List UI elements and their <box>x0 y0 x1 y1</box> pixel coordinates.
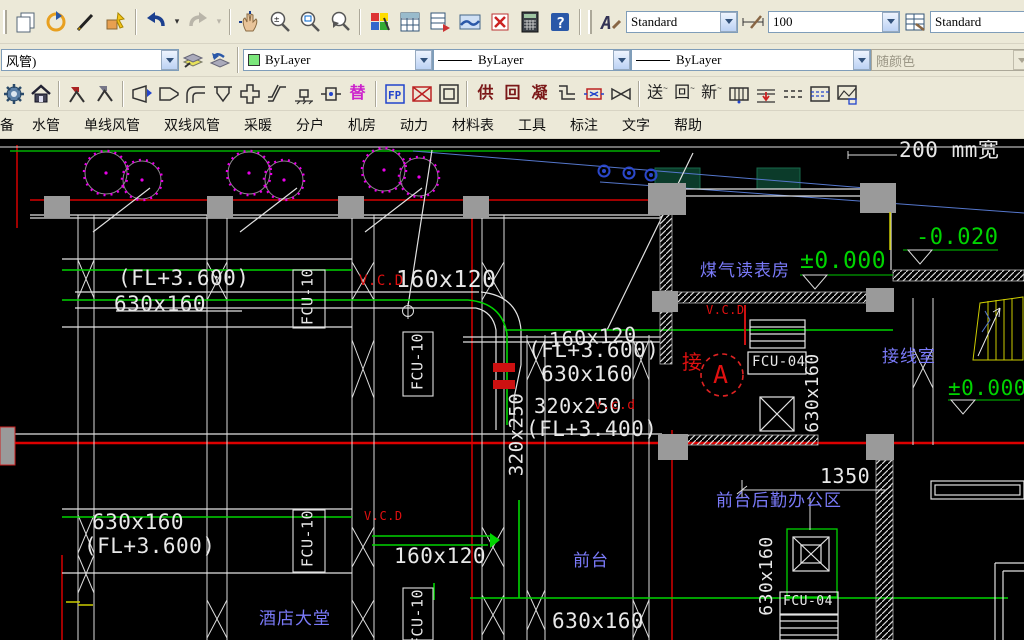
duct-tee-icon <box>211 82 235 106</box>
separator <box>375 81 377 107</box>
separator <box>122 81 124 107</box>
menu-item-heating[interactable]: 采暖 <box>244 115 272 135</box>
air-outlet-button[interactable] <box>725 81 752 107</box>
menu-bar: 备 水管 单线风管 双线风管 采暖 分户 机房 动力 材料表 工具 标注 文字 … <box>0 111 1024 139</box>
pan-button[interactable] <box>235 7 265 37</box>
text-style-value: Standard <box>631 14 720 30</box>
dropdown-arrow-icon[interactable] <box>882 12 899 32</box>
open-button[interactable] <box>41 7 71 37</box>
damper-button[interactable] <box>408 81 435 107</box>
label-room-lobby[interactable]: 酒店大堂 <box>259 610 331 627</box>
label-fcu10-d[interactable]: FCU-10 <box>411 573 426 640</box>
linetype-value: ByLayer <box>478 52 613 68</box>
supply-pipe-char-icon: 供 <box>477 86 493 102</box>
label-room-junction[interactable]: 接线室 <box>882 348 936 365</box>
gear-icon <box>3 83 25 105</box>
drawing-canvas[interactable]: 200 mm宽 -0.020 ±0.000 ±0.000 煤气读表房 接线室 前… <box>0 140 1024 640</box>
build-tool-button-2[interactable] <box>91 81 118 107</box>
layers-palette-icon <box>398 10 422 34</box>
label-level-neg-020[interactable]: -0.020 <box>916 227 998 249</box>
dropdown-arrow-icon[interactable] <box>853 50 870 70</box>
damper-icon <box>410 82 434 106</box>
label-vcd-c[interactable]: V.C.D <box>364 510 403 522</box>
table-style-icon <box>903 10 927 34</box>
fresh-air-button[interactable]: 新~ <box>698 81 725 107</box>
valve-icon <box>609 82 633 106</box>
color-select[interactable]: ByLayer <box>243 49 433 71</box>
separator <box>135 9 137 35</box>
duct-cross-icon <box>238 82 262 106</box>
label-duct-630x160-c[interactable]: 630x160 <box>92 512 184 533</box>
layer-stack-icon <box>181 49 205 71</box>
dim-scale-value: 100 <box>773 14 882 30</box>
valve-button[interactable] <box>607 81 634 107</box>
label-duct-630x160-b[interactable]: 630x160 <box>541 364 633 385</box>
structural-columns <box>44 183 896 460</box>
layer-value: 风管) <box>6 51 161 70</box>
return-pipe-button[interactable]: 回 <box>499 81 526 107</box>
menu-item-household[interactable]: 分户 <box>296 115 324 135</box>
svg-text:A: A <box>600 13 612 34</box>
duct-transition-button[interactable] <box>155 81 182 107</box>
duct-offset-icon <box>265 82 289 106</box>
zoom-realtime-button[interactable]: ± <box>265 7 295 37</box>
diffuser-arrow-icon <box>754 82 778 106</box>
markup-icon <box>488 10 512 34</box>
label-fcu10-c[interactable]: FCU-10 <box>301 494 316 584</box>
layer-translate-icon <box>428 10 452 34</box>
dropdown-arrow-icon[interactable] <box>161 50 178 70</box>
pump-button[interactable] <box>580 81 607 107</box>
text-style-icon: A <box>599 10 623 34</box>
label-fcu10-b[interactable]: FCU-10 <box>411 317 426 407</box>
layer-translate-button[interactable] <box>425 7 455 37</box>
return-air-char-icon: 回~ <box>674 85 695 101</box>
separator <box>359 9 361 35</box>
fcu-unit-top <box>748 320 806 431</box>
label-duct-320x250-vertical[interactable]: 320x250 <box>508 390 527 480</box>
menu-item-dimension[interactable]: 标注 <box>570 115 598 135</box>
svg-text:?: ? <box>556 14 565 32</box>
equipment-button[interactable] <box>833 81 860 107</box>
label-duct-630x160-a[interactable]: 630x160 <box>114 294 206 315</box>
replace-button[interactable]: 替 <box>344 81 371 107</box>
layer-select[interactable]: 风管) <box>1 49 179 71</box>
return-pipe-char-icon: 回 <box>504 86 520 102</box>
label-connect[interactable]: 接 <box>682 352 703 372</box>
duct-offset-button[interactable] <box>263 81 290 107</box>
air-grille-button[interactable] <box>435 81 462 107</box>
label-room-gas-meter[interactable]: 煤气读表房 <box>700 262 790 279</box>
new-button[interactable] <box>11 7 41 37</box>
label-fcu04-b[interactable]: FCU-04 <box>783 595 833 608</box>
menu-item-power[interactable]: 动力 <box>400 115 428 135</box>
label-duct-160x120-a[interactable]: 160x120 <box>396 269 496 292</box>
hammer-icon <box>94 83 116 105</box>
svg-text:±: ± <box>274 15 280 25</box>
layers-palette-button[interactable] <box>395 7 425 37</box>
label-level-zero-b[interactable]: ±0.000 <box>948 378 1024 399</box>
duct-cross-button[interactable] <box>236 81 263 107</box>
label-fcu04-a[interactable]: FCU-04 <box>752 355 806 369</box>
redo-dropdown[interactable]: ▾ <box>213 9 225 35</box>
layer-previous-button[interactable] <box>206 47 233 73</box>
label-duct-160x120-c[interactable]: 160x120 <box>394 546 486 567</box>
label-vcd-b[interactable]: v.c.d <box>594 399 636 412</box>
layer-previous-icon <box>208 49 232 71</box>
table-style-select[interactable]: Standard <box>930 11 1024 33</box>
pipe-elbow-icon <box>555 82 579 106</box>
separator <box>229 9 231 35</box>
fp-icon: FP <box>383 82 407 106</box>
label-vcd-small-a[interactable]: V.C.D <box>706 304 745 316</box>
dropdown-arrow-icon[interactable] <box>720 12 737 32</box>
tree-symbols <box>84 148 439 200</box>
dim-scale-select[interactable]: 100 <box>768 11 900 33</box>
lineweight-value: ByLayer <box>676 52 853 68</box>
label-room-back-office[interactable]: 前台后勤办公区 <box>716 492 842 509</box>
louver-button[interactable] <box>806 81 833 107</box>
undo-button[interactable] <box>141 7 171 37</box>
table-style-value: Standard <box>935 14 1024 30</box>
label-fcu10-a[interactable]: FCU-10 <box>301 252 316 342</box>
house-icon <box>30 83 52 105</box>
stair-symbol <box>973 297 1023 360</box>
properties-palette-icon <box>368 10 392 34</box>
plot-style-select: 随颜色 <box>871 49 1024 71</box>
zoom-previous-button[interactable] <box>325 7 355 37</box>
settings-button[interactable] <box>0 81 27 107</box>
undo-dropdown[interactable]: ▾ <box>171 9 183 35</box>
separator <box>466 81 468 107</box>
help-icon: ? <box>548 10 572 34</box>
rotate-circle-icon <box>44 10 68 34</box>
build-tool-button-1[interactable] <box>64 81 91 107</box>
linetype-select[interactable]: ByLayer <box>433 49 631 71</box>
standard-toolbar: ▾ ▾ ± ? A Standard 100 Standard <box>0 0 1024 44</box>
edge-column <box>0 427 15 465</box>
hvac-toolbar: 替 FP 供 回 凝 送~ 回~ 新~ <box>0 77 1024 111</box>
make-layer-current-button[interactable] <box>179 47 206 73</box>
label-duct-630x160-d[interactable]: 630x160 <box>552 611 644 632</box>
separator <box>58 81 60 107</box>
color-value: ByLayer <box>265 52 415 68</box>
condensate-pipe-button[interactable]: 凝 <box>526 81 553 107</box>
right-wall-details <box>931 481 1024 640</box>
separator <box>237 47 239 73</box>
document-copy-icon <box>14 10 38 34</box>
grille-icon <box>437 82 461 106</box>
toolbar-area: ▾ ▾ ± ? A Standard 100 Standard 风管) ByLa… <box>0 0 1024 139</box>
menu-item-text[interactable]: 文字 <box>622 115 650 135</box>
ceiling-diffuser-button[interactable] <box>752 81 779 107</box>
return-air-button[interactable]: 回~ <box>671 81 698 107</box>
redo-button[interactable] <box>183 7 213 37</box>
equipment-icon <box>835 82 859 106</box>
menu-item-tools[interactable]: 工具 <box>518 115 546 135</box>
toolbar-grip[interactable] <box>3 10 7 34</box>
label-fl3600-a[interactable]: (FL+3.600) <box>118 268 249 289</box>
fp-button[interactable]: FP <box>381 81 408 107</box>
duct-inline-fan-button[interactable] <box>317 81 344 107</box>
label-fl3600-b[interactable]: (FL+3.600) <box>528 340 659 361</box>
edit-button[interactable] <box>71 7 101 37</box>
dropdown-arrow-icon[interactable] <box>415 50 432 70</box>
redo-icon <box>186 10 210 34</box>
width-note-leader <box>848 151 897 159</box>
pump-icon <box>582 82 606 106</box>
dropdown-arrow-icon[interactable] <box>613 50 630 70</box>
louver-icon <box>808 82 832 106</box>
dropdown-arrow-icon <box>1013 50 1024 70</box>
separator <box>579 9 581 35</box>
duct-reducer-icon <box>130 82 154 106</box>
duct-support-icon <box>292 82 316 106</box>
duct-transition-icon <box>157 82 181 106</box>
zoom-previous-icon <box>328 10 352 34</box>
match-properties-button[interactable] <box>101 7 131 37</box>
toolbar-grip[interactable] <box>588 10 592 34</box>
plot-style-value: 随颜色 <box>876 51 1013 70</box>
table-style-button[interactable] <box>900 7 930 37</box>
duct-elbow-icon <box>184 82 208 106</box>
menu-item-double-line-duct[interactable]: 双线风管 <box>164 115 220 135</box>
calculator-icon <box>518 10 542 34</box>
zoom-realtime-icon: ± <box>268 10 292 34</box>
duct-tee-button[interactable] <box>209 81 236 107</box>
pipe-elbow-button[interactable] <box>553 81 580 107</box>
fresh-air-char-icon: 新~ <box>701 85 722 101</box>
condensate-pipe-char-icon: 凝 <box>531 86 547 102</box>
lineweight-select[interactable]: ByLayer <box>631 49 871 71</box>
blue-fixture-symbols <box>599 166 657 181</box>
label-width-note[interactable]: 200 mm宽 <box>899 140 999 161</box>
linetype-sample <box>438 60 472 61</box>
menu-item-single-line-duct[interactable]: 单线风管 <box>84 115 140 135</box>
color-swatch <box>248 54 260 66</box>
object-properties-bar: 风管) ByLayer ByLayer ByLayer 随颜色 <box>0 44 1024 77</box>
home-button[interactable] <box>27 81 54 107</box>
match-properties-icon <box>104 10 128 34</box>
duct-reducer-button[interactable] <box>128 81 155 107</box>
hammer-icon <box>67 83 89 105</box>
sheet-set-button[interactable] <box>455 7 485 37</box>
duct-support-button[interactable] <box>290 81 317 107</box>
label-duct-630x160-vertical-b[interactable]: 630x160 <box>758 531 776 621</box>
text-style-select[interactable]: Standard <box>626 11 738 33</box>
label-connect-circle-a[interactable]: A <box>713 362 729 387</box>
label-room-front-desk[interactable]: 前台 <box>573 552 609 569</box>
pan-hand-icon <box>238 10 262 34</box>
label-dim-1350[interactable]: 1350 <box>820 466 870 486</box>
menu-item-material-table[interactable]: 材料表 <box>452 115 494 135</box>
zoom-window-icon <box>298 10 322 34</box>
duct-inline-fan-icon <box>319 82 343 106</box>
supply-air-char-icon: 送~ <box>647 85 668 101</box>
properties-palette-button[interactable] <box>365 7 395 37</box>
lineweight-sample <box>636 60 670 61</box>
dashed-duct-icon <box>781 82 805 106</box>
dim-style-icon <box>741 10 765 34</box>
air-outlet-icon <box>727 82 751 106</box>
replace-char-icon: 替 <box>349 86 365 102</box>
menu-item-water-pipe[interactable]: 水管 <box>32 115 60 135</box>
label-level-zero-a[interactable]: ±0.000 <box>800 250 886 273</box>
zoom-window-button[interactable] <box>295 7 325 37</box>
markup-button[interactable] <box>485 7 515 37</box>
calculator-button[interactable] <box>515 7 545 37</box>
duct-flow-arrow <box>490 533 500 548</box>
label-fl3400[interactable]: (FL+3.400) <box>526 419 657 440</box>
supply-air-button[interactable]: 送~ <box>644 81 671 107</box>
separator <box>638 81 640 107</box>
label-duct-630x160-vertical-a[interactable]: 630x160 <box>804 348 822 438</box>
undo-icon <box>144 10 168 34</box>
sheet-set-icon <box>458 10 482 34</box>
dashed-duct-button[interactable] <box>779 81 806 107</box>
help-button[interactable]: ? <box>545 7 575 37</box>
menu-item-plant-room[interactable]: 机房 <box>348 115 376 135</box>
supply-pipe-button[interactable]: 供 <box>472 81 499 107</box>
text-style-button[interactable]: A <box>596 7 626 37</box>
label-fl3600-c[interactable]: (FL+3.600) <box>84 536 215 557</box>
pencil-icon <box>74 10 98 34</box>
fcu-unit-bottom <box>780 537 838 640</box>
svg-text:FP: FP <box>388 89 402 102</box>
menu-item-help[interactable]: 帮助 <box>674 115 702 135</box>
duct-elbow-button[interactable] <box>182 81 209 107</box>
menu-item-truncated[interactable]: 备 <box>0 115 14 135</box>
dim-style-button[interactable] <box>738 7 768 37</box>
